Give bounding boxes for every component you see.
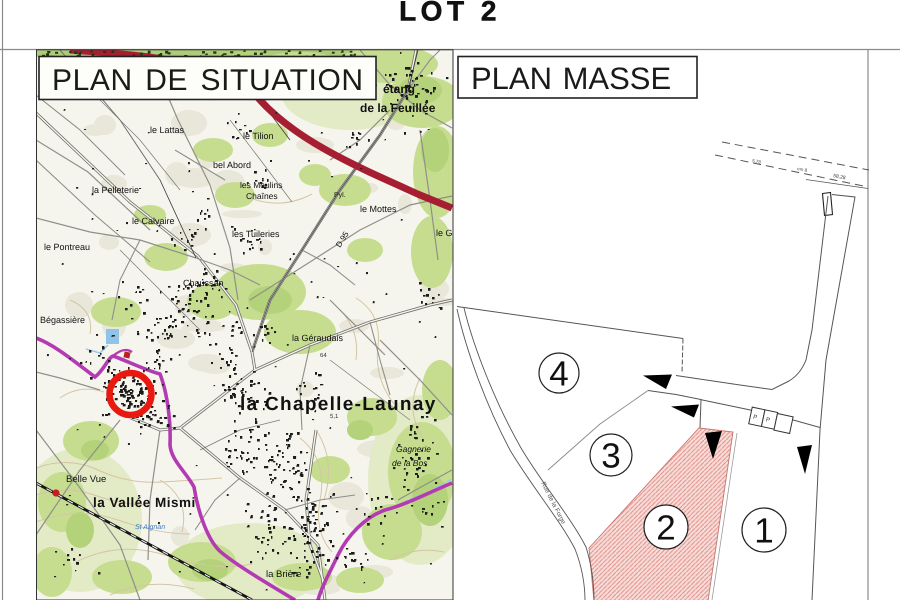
svg-text:2: 2 — [656, 509, 675, 548]
svg-text:5,78: 5,78 — [752, 158, 762, 165]
svg-text:PLAN DE SITUATION: PLAN DE SITUATION — [52, 64, 364, 97]
svg-text:le G: le G — [436, 228, 453, 238]
svg-text:le Calvaire: le Calvaire — [132, 216, 175, 226]
svg-text:Chaussan: Chaussan — [183, 278, 224, 288]
svg-text:les Tuileries: les Tuileries — [232, 229, 280, 239]
svg-text:Pyl.: Pyl. — [334, 191, 346, 199]
svg-text:PLAN MASSE: PLAN MASSE — [471, 61, 671, 96]
svg-text:de la Feuillée: de la Feuillée — [360, 101, 436, 115]
svg-text:le Pontreau: le Pontreau — [44, 242, 90, 252]
svg-text:la Vallée Mismi: la Vallée Mismi — [93, 495, 196, 510]
svg-text:St Aignan: St Aignan — [135, 523, 165, 531]
svg-text:Gagnerie: Gagnerie — [396, 444, 431, 454]
svg-text:la Pelleterie: la Pelleterie — [92, 185, 139, 195]
svg-text:étang: étang — [383, 82, 415, 96]
svg-text:la Brière: la Brière — [266, 569, 301, 580]
svg-text:3: 3 — [601, 437, 620, 476]
svg-text:em 8: em 8 — [797, 166, 808, 173]
svg-text:4: 4 — [549, 355, 568, 394]
svg-text:de la Bos: de la Bos — [392, 458, 428, 468]
svg-text:Belle Vue: Belle Vue — [66, 474, 106, 485]
svg-text:les Moulins: les Moulins — [240, 180, 283, 190]
svg-text:LOT 2: LOT 2 — [399, 0, 501, 27]
svg-text:Rue de la Forge: Rue de la Forge — [539, 481, 567, 526]
svg-text:64: 64 — [320, 352, 327, 359]
svg-text:le Lattas: le Lattas — [150, 125, 185, 135]
svg-text:bel Abord: bel Abord — [213, 160, 251, 170]
svg-text:1: 1 — [754, 512, 773, 551]
svg-text:Chaînes: Chaînes — [246, 191, 278, 201]
svg-text:5,1: 5,1 — [330, 413, 339, 420]
svg-text:Bégassière: Bégassière — [40, 315, 85, 325]
svg-text:la Chapelle-Launay: la Chapelle-Launay — [240, 394, 437, 415]
svg-text:la Géraudais: la Géraudais — [292, 333, 344, 343]
svg-text:le Mottes: le Mottes — [360, 204, 397, 214]
svg-text:le Tilion: le Tilion — [243, 131, 274, 141]
